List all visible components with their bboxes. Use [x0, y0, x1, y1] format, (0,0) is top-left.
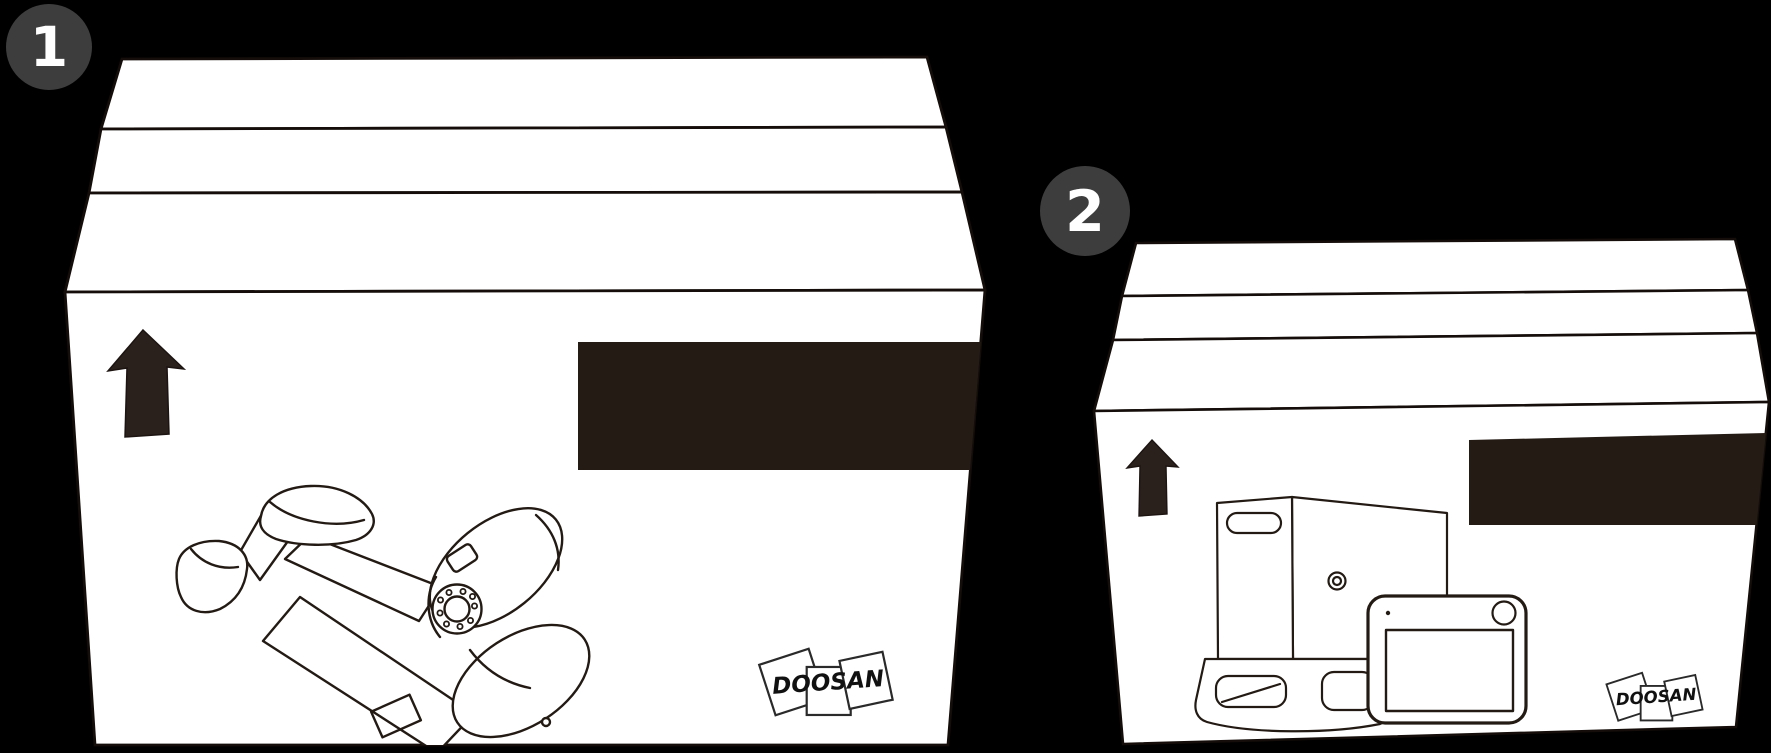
- box1-lid-flap-2: [89, 127, 962, 193]
- step-badge-2: 2: [1040, 166, 1130, 256]
- teach-pendant-led: [1386, 611, 1390, 615]
- box2-lid-flap-1: [1122, 239, 1748, 296]
- box2-shipping-label: [1469, 433, 1766, 525]
- robot-wrist-screw: [542, 718, 550, 726]
- packaging-scene: DOOSAN: [0, 0, 1771, 753]
- teach-pendant-screen: [1386, 630, 1513, 711]
- box1-lid-flap-3: [65, 192, 985, 292]
- box1-shipping-label: [578, 342, 981, 470]
- step-badge-1-number: 1: [30, 15, 68, 79]
- robot-tool-flange: [433, 585, 482, 634]
- controller-base: [1195, 659, 1392, 731]
- step-badge-2-number: 2: [1065, 179, 1105, 245]
- box2-lid-flap-3: [1094, 333, 1769, 411]
- box2-lid-flap-2: [1113, 290, 1757, 340]
- step-badge-1: 1: [6, 4, 92, 90]
- box1-lid-flap-1: [101, 57, 946, 129]
- teach-pendant: [1368, 596, 1526, 723]
- packaging-diagram: DOOSAN: [0, 0, 1771, 753]
